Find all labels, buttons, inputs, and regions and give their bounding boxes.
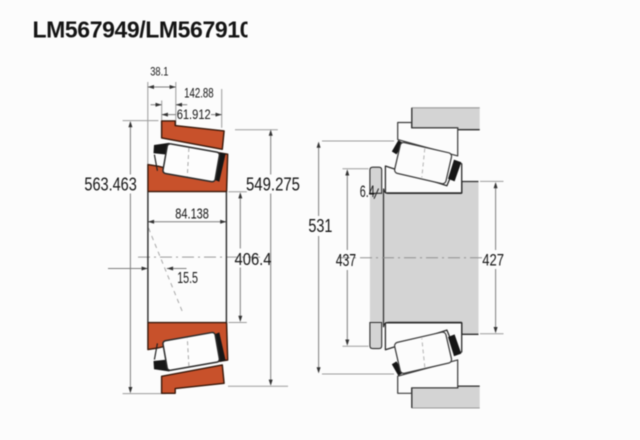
svg-text:406.4: 406.4 bbox=[235, 249, 272, 269]
svg-text:549.275: 549.275 bbox=[246, 174, 300, 194]
svg-text:563.463: 563.463 bbox=[84, 174, 136, 195]
svg-text:6.4: 6.4 bbox=[360, 182, 375, 201]
svg-text:15.5: 15.5 bbox=[177, 270, 198, 287]
svg-text:61.912: 61.912 bbox=[177, 107, 211, 123]
svg-text:84.138: 84.138 bbox=[175, 206, 209, 222]
svg-text:LM567949/LM567910: LM567949/LM567910 bbox=[33, 16, 253, 42]
svg-text:531: 531 bbox=[308, 216, 332, 236]
svg-text:427: 427 bbox=[482, 250, 504, 269]
svg-text:142.88: 142.88 bbox=[184, 85, 214, 101]
svg-text:437: 437 bbox=[336, 250, 356, 270]
svg-text:38.1: 38.1 bbox=[150, 65, 168, 79]
